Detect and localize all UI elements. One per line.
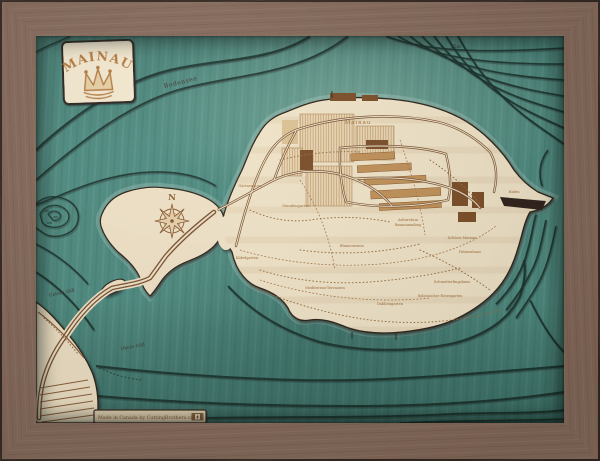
map-artwork: N Bodensee Untere Güll Obere Güll 25m Ma… xyxy=(36,36,564,423)
maker-plaque-text: Made in Canada by CuttingBrothers.ca xyxy=(98,415,193,421)
isthmus-patch xyxy=(217,216,235,250)
island-label: Gärtnerturm xyxy=(238,184,262,188)
island-label: Blumenwiese xyxy=(340,244,364,248)
depth-label: 25m xyxy=(451,45,462,50)
framed-wood-map: N Bodensee Untere Güll Obere Güll 25m Ma… xyxy=(0,0,600,461)
island-label: Italienischer Rosengarten xyxy=(418,294,463,298)
lake-name-label: Bodensee xyxy=(163,75,198,90)
title-cartouche: MAINAU xyxy=(59,40,137,105)
island-label: Baumsammlung xyxy=(395,223,421,227)
island-name-label: Mainau xyxy=(345,120,372,126)
island-label: Palmenhaus xyxy=(459,250,481,254)
island-label: Schloss Mainau xyxy=(448,236,477,240)
island-label: Hafen xyxy=(508,190,520,194)
bay-lower-label: Obere Güll xyxy=(121,343,146,352)
island-label: Dahliengarten xyxy=(377,302,404,306)
island-label: Kübelgarten xyxy=(236,256,259,260)
compass-north-label: N xyxy=(168,193,176,203)
bay-upper-label: Untere Güll xyxy=(49,288,76,298)
island-label: Schmetterlingshaus xyxy=(434,280,471,284)
island-label: Arboretum xyxy=(397,218,418,222)
maker-plaque: Made in Canada by CuttingBrothers.ca xyxy=(94,410,206,423)
island-label: Staudengarten xyxy=(282,204,310,208)
island-label: Mediterran-Terrassen xyxy=(305,286,345,290)
